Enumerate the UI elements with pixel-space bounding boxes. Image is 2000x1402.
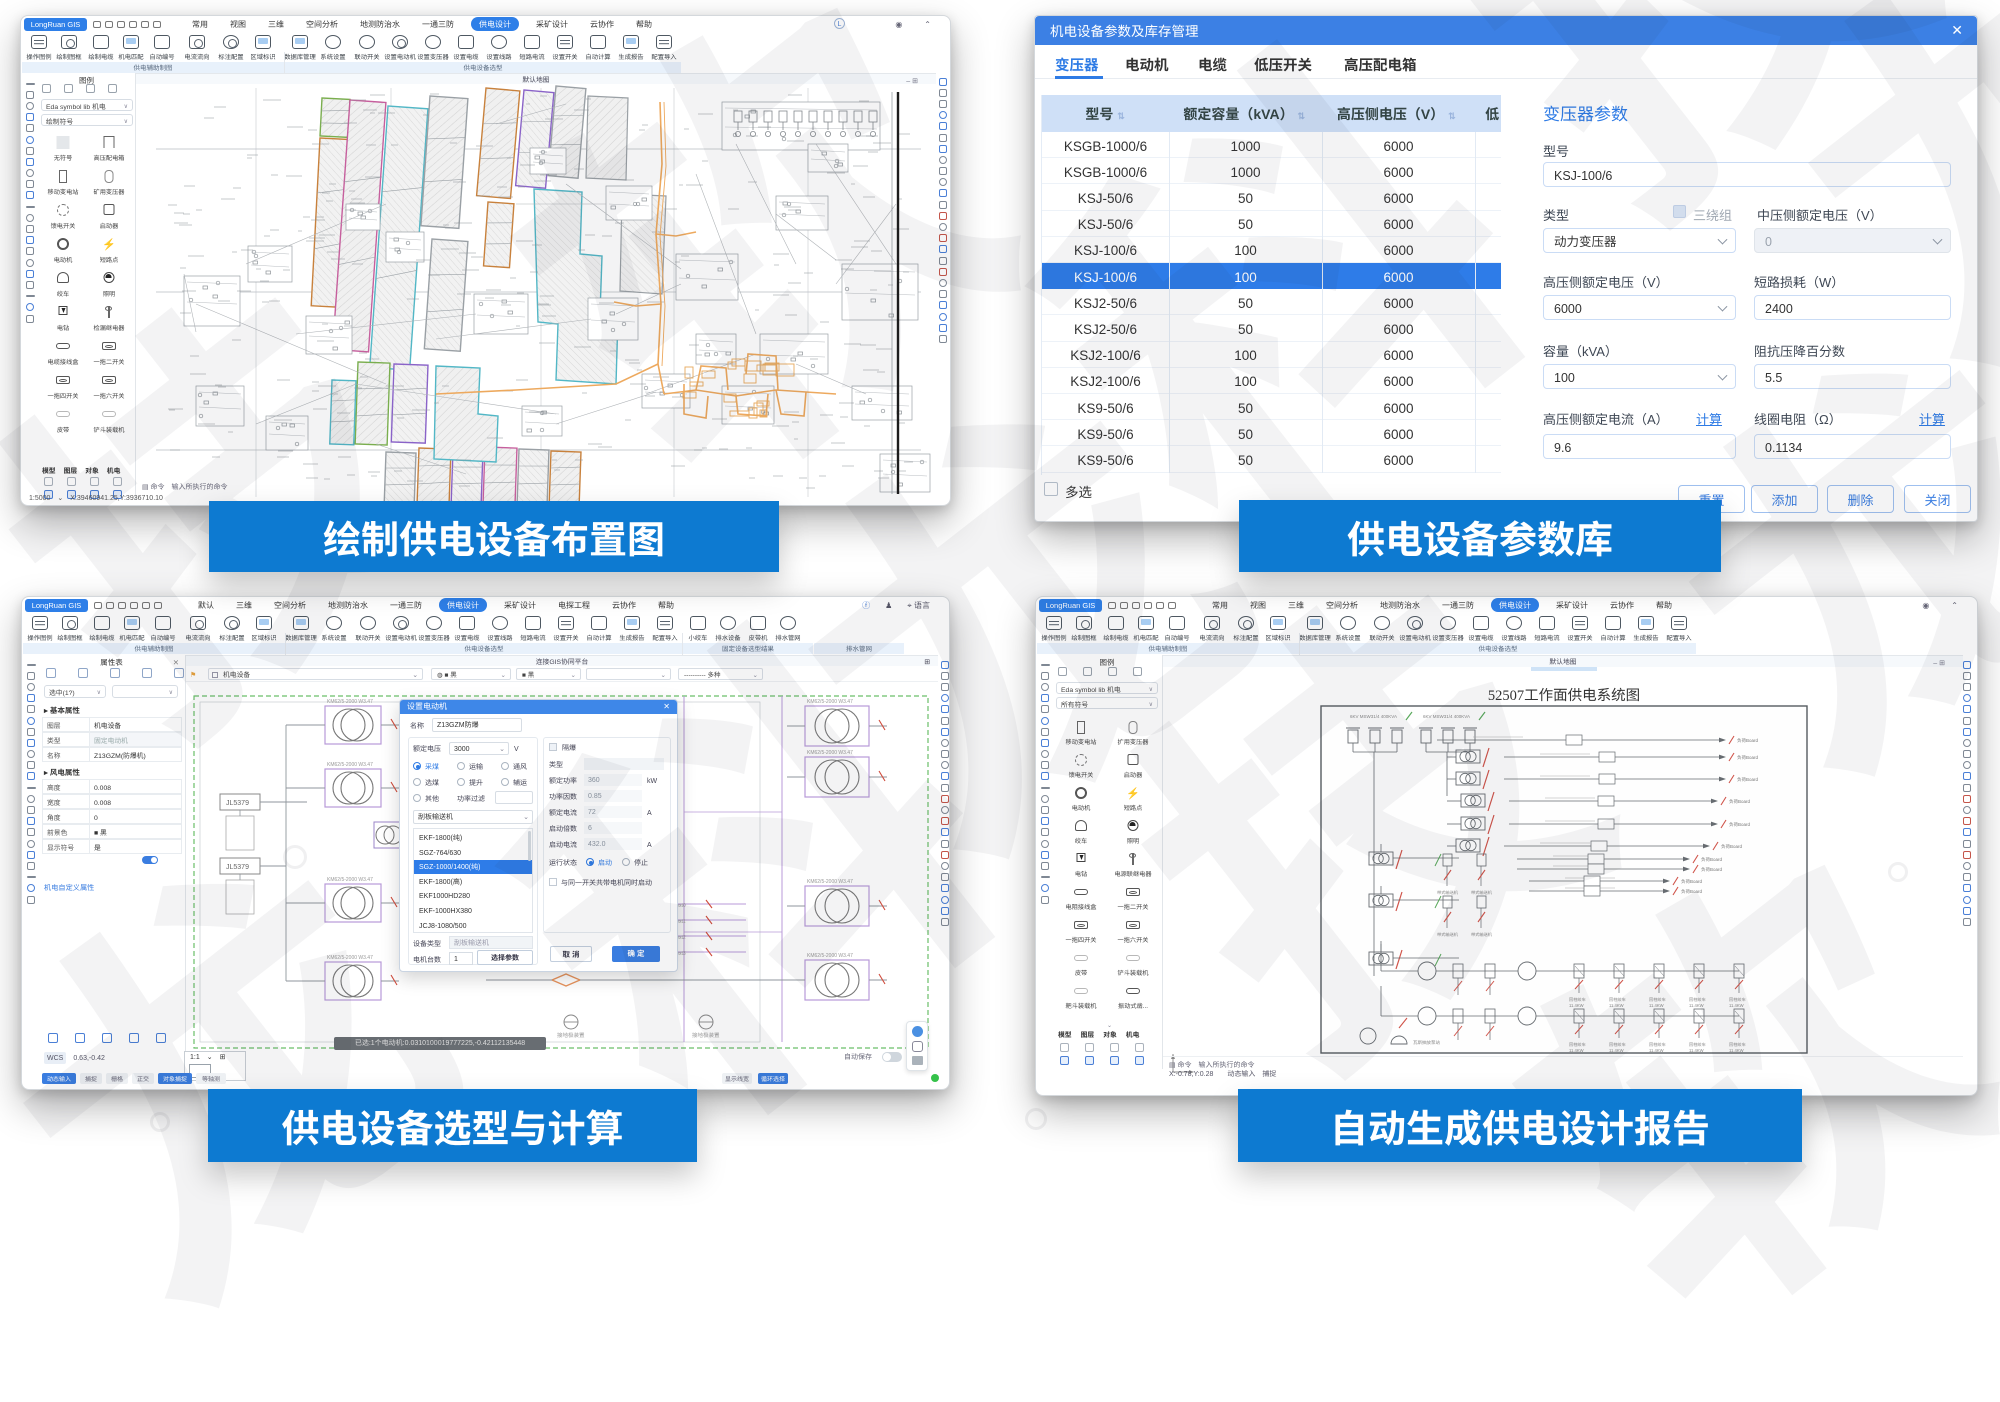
svg-text:负荷Board: 负荷Board [1721,844,1743,850]
svg-text:11.4KW: 11.4KW [1649,1048,1664,1054]
svg-text:KM62/5-2000 W3.47: KM62/5-2000 W3.47 [807,878,853,885]
svg-text:11.4KW: 11.4KW [1569,1003,1584,1009]
svg-text:接地极装置: 接地极装置 [692,1031,720,1039]
svg-text:负荷Board: 负荷Board [1681,879,1703,885]
svg-text:负荷Board: 负荷Board [1729,799,1751,805]
svg-text:11.4KW: 11.4KW [1649,1003,1664,1009]
svg-text:11.4KW: 11.4KW [1689,1003,1704,1009]
svg-text:负荷Board: 负荷Board [1729,822,1751,828]
svg-text:负荷Board: 负荷Board [1701,867,1723,873]
svg-text:带式输送机: 带式输送机 [1471,890,1493,896]
svg-text:负荷Board: 负荷Board [1737,755,1759,761]
svg-text:11.4KW: 11.4KW [1569,1048,1584,1054]
svg-text:6KV MSW31/4 400KVA: 6KV MSW31/4 400KVA [1423,714,1470,720]
svg-text:带式输送机: 带式输送机 [1437,890,1459,896]
svg-text:52507工作面供电系统图: 52507工作面供电系统图 [1488,687,1640,704]
svg-text:11.4KW: 11.4KW [1729,1048,1744,1054]
svg-text:JL5379: JL5379 [226,862,249,872]
svg-text:11.4KW: 11.4KW [1729,1003,1744,1009]
svg-text:11.4KW: 11.4KW [1609,1048,1624,1054]
svg-text:负荷Board: 负荷Board [1681,889,1703,895]
svg-text:KM62/5-2000 W3.47: KM62/5-2000 W3.47 [807,749,853,756]
svg-text:KM62/5-2000 W3.47: KM62/5-2000 W3.47 [327,876,373,883]
svg-text:11.4KW: 11.4KW [1689,1048,1704,1054]
svg-text:KM62/5-2000 W3.47: KM62/5-2000 W3.47 [327,698,373,705]
svg-text:KM62/5-2000 W3.47: KM62/5-2000 W3.47 [327,954,373,961]
svg-text:负荷Board: 负荷Board [1737,738,1759,744]
svg-text:接地极装置: 接地极装置 [557,1031,585,1039]
svg-text:KM62/5-2000 W3.47: KM62/5-2000 W3.47 [807,952,853,959]
svg-text:负荷Board: 负荷Board [1737,777,1759,783]
svg-text:KM62/5-2000 W3.47: KM62/5-2000 W3.47 [327,761,373,768]
svg-text:负荷Board: 负荷Board [1701,857,1723,863]
svg-text:带式输送机: 带式输送机 [1437,932,1459,938]
svg-text:带式输送机: 带式输送机 [1471,932,1493,938]
svg-text:瓦斯抽放泵站: 瓦斯抽放泵站 [1413,1040,1440,1046]
svg-text:JL5379: JL5379 [226,798,249,808]
svg-text:KM62/5-2000 W3.47: KM62/5-2000 W3.47 [807,698,853,705]
svg-text:11.4KW: 11.4KW [1609,1003,1624,1009]
svg-text:6KV MSW31/4 400KVA: 6KV MSW31/4 400KVA [1350,714,1397,720]
